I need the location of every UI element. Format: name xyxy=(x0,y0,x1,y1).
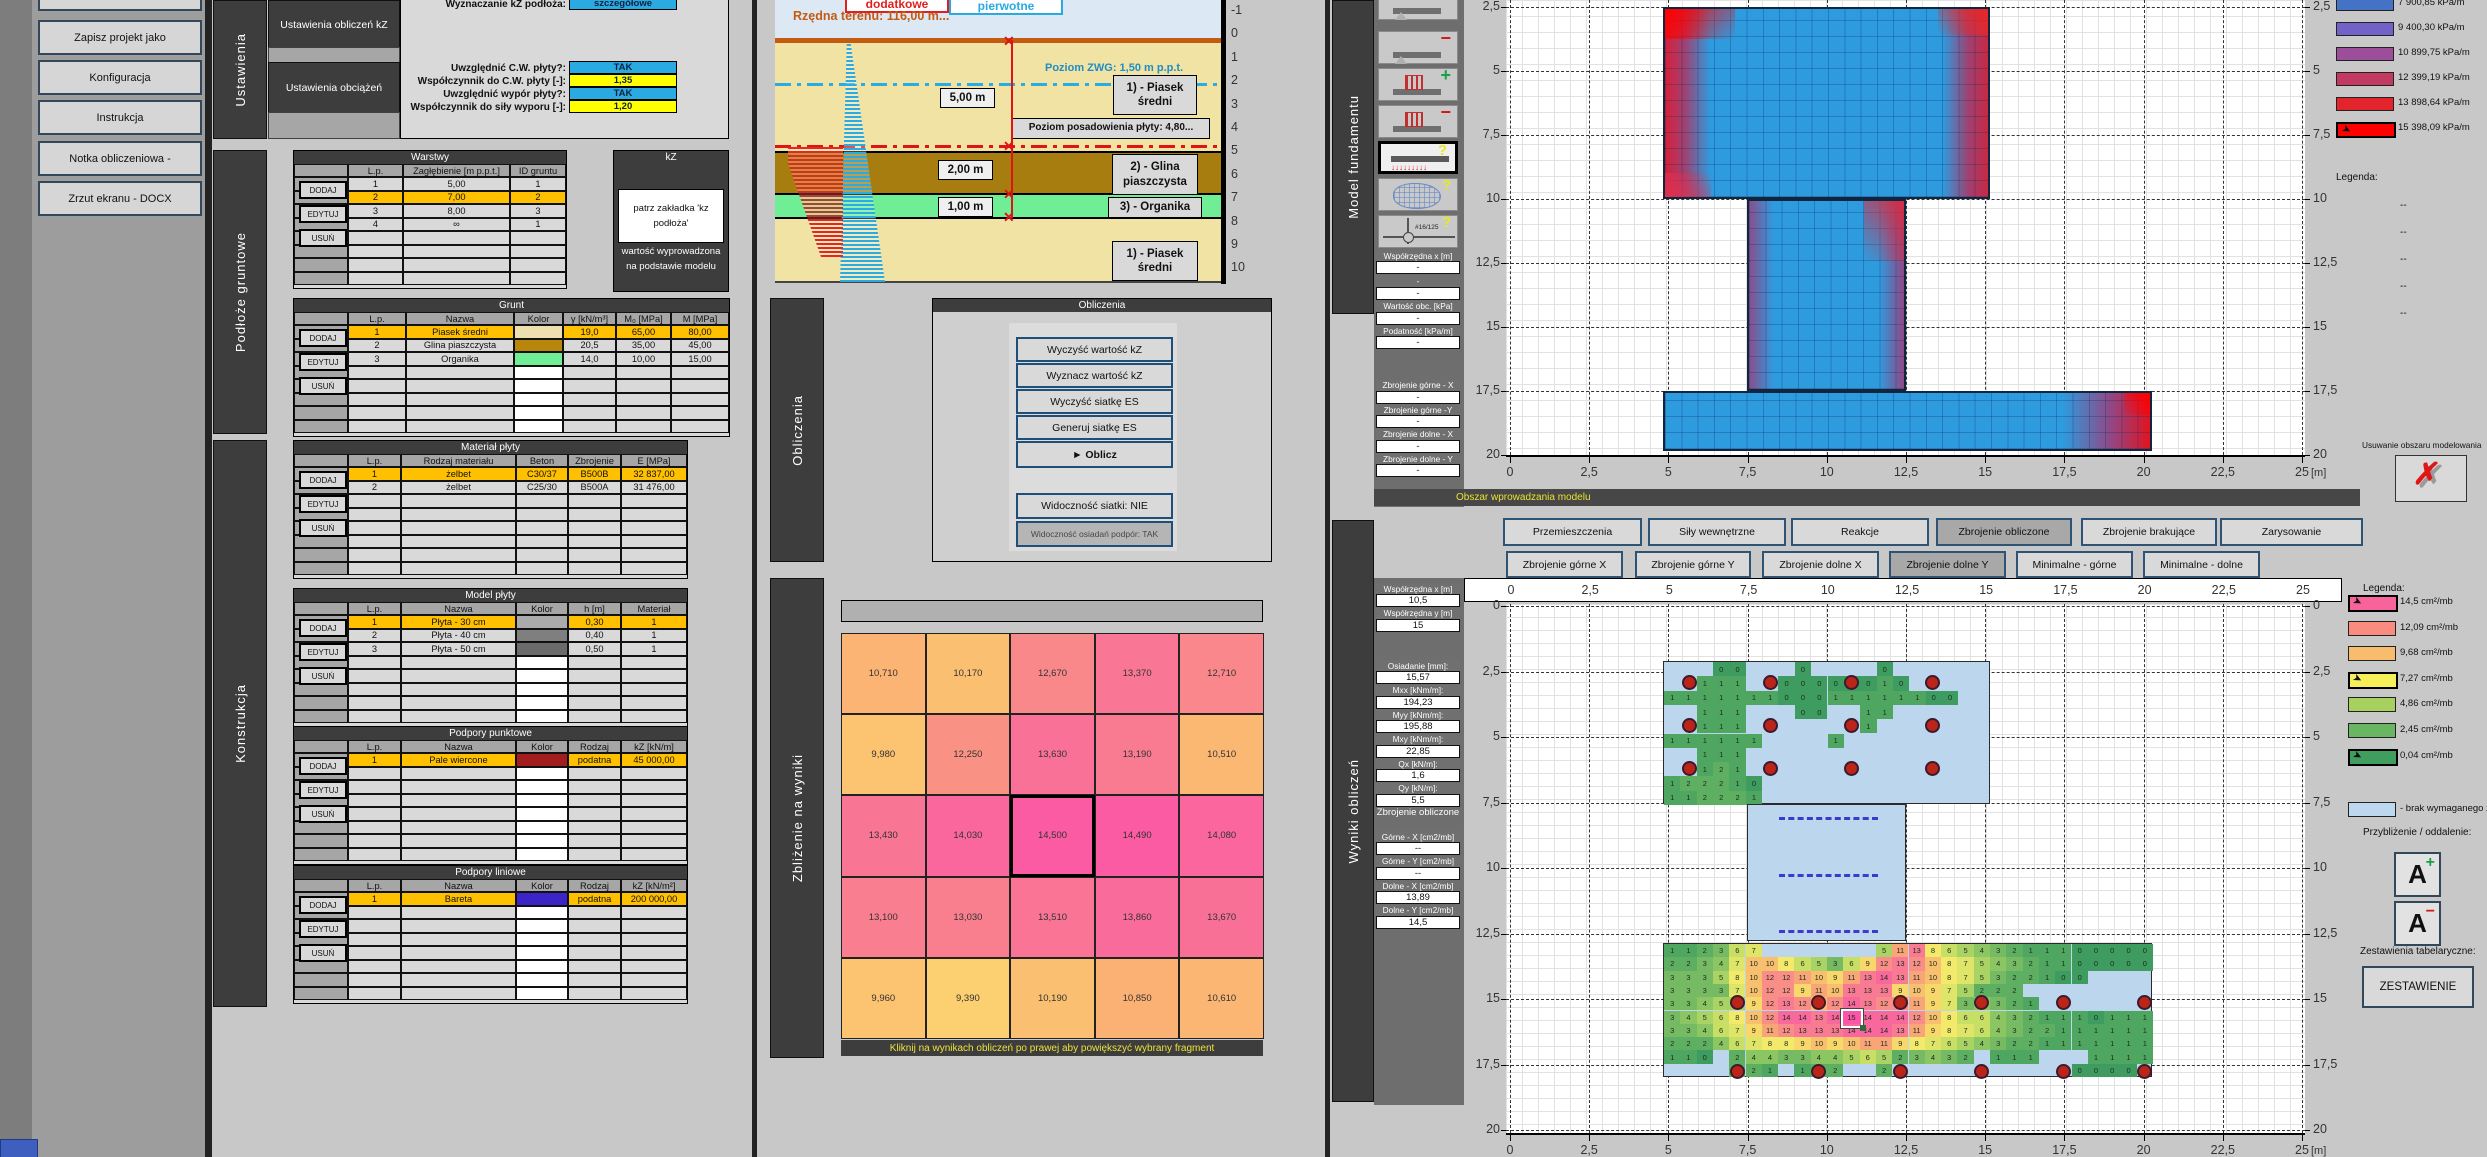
font-zoom-out-button[interactable]: A− xyxy=(2394,901,2441,946)
band-cell: 2 xyxy=(1697,944,1713,957)
strip-field-value[interactable]: 5,5 xyxy=(1376,794,1460,807)
zoom-grid-cell[interactable]: 13,630 xyxy=(1010,714,1095,795)
table-cell xyxy=(516,642,568,656)
result-tab-przemieszczenia[interactable]: Przemieszczenia xyxy=(1503,518,1642,546)
delete-area-button[interactable]: ✗ ✗ xyxy=(2395,455,2467,502)
top-cell: 1 xyxy=(1746,691,1762,705)
result-subtab-zbrojenie-dolne-y[interactable]: Zbrojenie dolne Y xyxy=(1889,551,2006,578)
table-cell xyxy=(621,807,687,821)
table-title-grunt: Grunt xyxy=(294,299,729,312)
strip-field-value[interactable]: -- xyxy=(1376,842,1460,855)
band-cell: 4 xyxy=(1811,1050,1827,1063)
table-cell xyxy=(401,973,516,987)
model-foundation-top-block[interactable] xyxy=(1663,7,1990,199)
model-legend-swatch[interactable] xyxy=(2336,72,2394,86)
calc-note-button[interactable]: Notka obliczeniowa - xyxy=(38,141,202,176)
table-cell xyxy=(401,919,516,933)
table-cell xyxy=(568,696,621,710)
zoom-grid-cell[interactable]: 14,030 xyxy=(926,795,1011,876)
strip-field-value[interactable]: - xyxy=(1376,464,1460,477)
results-top-xtick: 7,5 xyxy=(1729,583,1769,597)
result-tab-reakcje[interactable]: Reakcje xyxy=(1791,518,1929,546)
tick xyxy=(1510,457,1511,463)
table-cell: 0,40 xyxy=(568,629,621,643)
band-cell: 14 xyxy=(1876,971,1892,984)
zoom-grid-cell[interactable]: 10,710 xyxy=(841,633,926,714)
setting-value-input[interactable]: 1,35 xyxy=(569,74,677,87)
band-cell: 0 xyxy=(2072,957,2088,970)
zoom-grid-cell[interactable]: 10,170 xyxy=(926,633,1011,714)
delete-area-label: Usuwanie obszaru modelowania xyxy=(2362,440,2487,450)
table-cell xyxy=(616,420,671,434)
model-legend-swatch[interactable]: ➤ xyxy=(2336,122,2396,138)
hot-corner xyxy=(1864,201,1904,261)
band-cell: 12 xyxy=(1876,957,1892,970)
zoom-grid-cell[interactable]: 13,430 xyxy=(841,795,926,876)
left-gutter xyxy=(0,0,32,1157)
top-cell: 0 xyxy=(1811,691,1827,705)
settings-loads-button[interactable]: Ustawienia obciążeń xyxy=(268,62,400,114)
band-cell: 13 xyxy=(1843,984,1859,997)
table-cell xyxy=(401,946,516,960)
setting-value-dropdown[interactable]: szczegółowe xyxy=(569,0,677,10)
result-tab-siły-wewnętrzne[interactable]: Siły wewnętrzne xyxy=(1648,518,1786,546)
band-cell: 3 xyxy=(1697,971,1713,984)
model-xtick: 22,5 xyxy=(2203,465,2243,479)
zoom-grid-cell[interactable]: 13,370 xyxy=(1095,633,1180,714)
table-cell: podatna xyxy=(568,892,621,906)
strip-field-value[interactable]: 14,5 xyxy=(1376,916,1460,929)
zoom-grid-cell[interactable]: 14,500 xyxy=(1010,795,1095,876)
setting-value-dropdown[interactable]: TAK xyxy=(569,61,677,74)
results-ytick-left: 0 xyxy=(1460,598,1500,612)
table-podpory_punktowe-delete-button[interactable]: USUŃ xyxy=(299,805,347,823)
results-legend-label: 9,68 cm²/mb xyxy=(2400,647,2453,658)
zoom-grid-cell[interactable]: 13,860 xyxy=(1095,877,1180,958)
results-foundation-mid-block[interactable] xyxy=(1747,804,1906,941)
strip-field-value[interactable]: 15 xyxy=(1376,619,1460,632)
load-add-icon[interactable]: + xyxy=(1378,68,1458,101)
result-tab-zbrojenie-brakujące[interactable]: Zbrojenie brakujące xyxy=(2081,518,2217,546)
zoom-grid-cell[interactable]: 13,100 xyxy=(841,877,926,958)
table-warstwy-delete-button[interactable]: USUŃ xyxy=(299,229,347,247)
band-cell: 2 xyxy=(1697,1037,1713,1050)
top-cell: 1 xyxy=(1697,691,1713,705)
tab-obliczenia[interactable]: Obliczenia xyxy=(770,298,824,562)
hot-corner xyxy=(1665,9,1735,39)
top-cell: 0 xyxy=(1828,676,1844,690)
band-cell: 3 xyxy=(1713,984,1729,997)
top-cell: 1 xyxy=(1762,691,1778,705)
band-cell: 2 xyxy=(2006,1037,2022,1050)
strip-field-label: Zbrojenie dolne - X xyxy=(1376,429,1460,440)
line-support xyxy=(1779,930,1878,933)
result-tab-zarysowanie[interactable]: Zarysowanie xyxy=(2220,518,2363,546)
instruction-button[interactable]: Instrukcja xyxy=(38,100,202,135)
band-cell: 6 xyxy=(1729,944,1745,957)
support-settlement-visibility-toggle[interactable]: Widoczność osiadań podpór: TAK xyxy=(1016,521,1173,547)
tick xyxy=(2305,1065,2310,1066)
table-cell: 65,00 xyxy=(616,325,671,339)
model-grid-major-v xyxy=(1510,0,1511,455)
col-header: L.p. xyxy=(348,312,406,325)
action-col xyxy=(294,696,348,710)
calc-button-2[interactable]: Wyczyść siatkę ES xyxy=(1016,389,1173,414)
results-foundation-band-block[interactable]: 1123675111386543211100000223471010865369… xyxy=(1663,943,2152,1077)
table-model_plyty-edit-button[interactable]: EDYTUJ xyxy=(299,643,347,661)
band-cell: 10 xyxy=(1909,984,1925,997)
tab-ustawienia[interactable]: Ustawienia xyxy=(213,0,267,139)
table-podpory_punktowe-add-button[interactable]: DODAJ xyxy=(299,757,347,775)
band-cell: 2 xyxy=(2023,957,2039,970)
results-legend-swatch[interactable]: ➤ xyxy=(2348,672,2398,689)
band-cell: 13 xyxy=(1909,944,1925,957)
table-cell xyxy=(563,420,616,434)
calc-button-1[interactable]: Wyznacz wartość kZ xyxy=(1016,363,1173,388)
strip-field-value[interactable]: 22,85 xyxy=(1376,745,1460,758)
band-cell: 3 xyxy=(1957,997,1973,1010)
strip-field-value[interactable]: - xyxy=(1376,312,1460,325)
line-support xyxy=(1779,874,1878,877)
table-cell xyxy=(516,848,568,862)
results-grid-major-h xyxy=(1506,606,2305,607)
tab-zblizenie-na-wyniki[interactable]: Zbliżenie na wyniki xyxy=(770,578,824,1058)
model-xtick: 5 xyxy=(1648,465,1688,479)
model-legend-swatch[interactable] xyxy=(2336,47,2394,61)
table-cell xyxy=(514,339,563,353)
tick xyxy=(2064,1135,2065,1141)
screenshot-docx-button[interactable]: Zrzut ekranu - DOCX xyxy=(38,181,202,216)
results-legend-swatch[interactable] xyxy=(2348,697,2396,712)
tab-konstrukcja[interactable]: Konstrukcja xyxy=(213,440,267,1007)
table-warstwy-add-button[interactable]: DODAJ xyxy=(299,181,347,199)
zoom-grid-cell[interactable]: 13,030 xyxy=(926,877,1011,958)
tick xyxy=(1827,1135,1828,1141)
pile-support-dot xyxy=(1682,675,1697,690)
rebar-edit-icon[interactable]: #16/125? xyxy=(1378,215,1458,248)
zoom-grid-cell[interactable]: 12,670 xyxy=(1010,633,1095,714)
save-project-as-button[interactable]: Zapisz projekt jako xyxy=(38,20,202,55)
result-subtab-minimalne-górne[interactable]: Minimalne - górne xyxy=(2016,551,2133,578)
zoom-grid-cell[interactable]: 14,080 xyxy=(1179,795,1264,876)
zoom-grid-cell[interactable]: 14,490 xyxy=(1095,795,1180,876)
strip-field-value[interactable]: 15,57 xyxy=(1376,671,1460,684)
table-cell xyxy=(516,629,568,643)
table-grunt-add-button[interactable]: DODAJ xyxy=(299,329,347,347)
band-cell: 10 xyxy=(1811,1037,1827,1050)
band-cell: 2 xyxy=(2023,1037,2039,1050)
band-cell: 5 xyxy=(1974,971,1990,984)
pile-support-dot xyxy=(1730,1064,1745,1079)
table-material-edit-button[interactable]: EDYTUJ xyxy=(299,495,347,513)
table-cell xyxy=(516,933,568,947)
table-cell xyxy=(568,987,621,1001)
top-cell: 1 xyxy=(1729,776,1745,790)
beam-support-add-icon[interactable]: + xyxy=(1378,0,1458,20)
model-ytick-left: 15 xyxy=(1460,319,1500,333)
band-cell: 1 xyxy=(2137,1024,2153,1037)
band-cell: 3 xyxy=(1664,971,1680,984)
model-xtick: 17,5 xyxy=(2044,465,2084,479)
strip-field-value[interactable]: 195,88 xyxy=(1376,720,1460,733)
table-material-add-button[interactable]: DODAJ xyxy=(299,471,347,489)
tab-podloze-gruntowe[interactable]: Podłoże gruntowe xyxy=(213,150,267,434)
zoom-grid-cell[interactable]: 12,250 xyxy=(926,714,1011,795)
zoom-grid-cell[interactable]: 10,510 xyxy=(1179,714,1264,795)
zoom-grid-cell[interactable]: 13,190 xyxy=(1095,714,1180,795)
zoom-grid-cell[interactable]: 9,390 xyxy=(926,958,1011,1039)
zoom-grid-cell[interactable]: 10,190 xyxy=(1010,958,1095,1039)
results-legend-swatch[interactable] xyxy=(2348,723,2396,738)
band-cell: 12 xyxy=(1909,957,1925,970)
band-cell: 10 xyxy=(1746,971,1762,984)
table-podpory_liniowe-add-button[interactable]: DODAJ xyxy=(299,896,347,914)
band-cell: 5 xyxy=(1957,984,1973,997)
calc-button-3[interactable]: Generuj siatkę ES xyxy=(1016,415,1173,440)
strip-field-label: Osiadanie [mm]: xyxy=(1376,660,1460,671)
setting-value-dropdown[interactable]: TAK xyxy=(569,87,677,100)
setting-label: Uwzględnić C.W. płyty?: xyxy=(451,63,566,74)
band-cell: 2 xyxy=(1990,984,2006,997)
table-cell xyxy=(621,933,687,947)
table-cell xyxy=(516,946,568,960)
band-cell: 13 xyxy=(1860,971,1876,984)
table-podpory_liniowe-delete-button[interactable]: USUŃ xyxy=(299,944,347,962)
load-arrows: ↓↓↓↓↓↓↓↓↓ xyxy=(1391,163,1449,171)
tick xyxy=(2305,606,2310,607)
strip-field-value[interactable]: - xyxy=(1376,440,1460,453)
top-cell: 1 xyxy=(1877,705,1893,719)
table-cell: Płyta - 40 cm xyxy=(401,629,516,643)
zoom-grid-cell[interactable]: 13,510 xyxy=(1010,877,1095,958)
soil-axis-tick: -1 xyxy=(1231,3,1242,17)
col-header: γ [kN/m³] xyxy=(563,312,616,325)
results-legend-swatch[interactable]: ➤ xyxy=(2348,595,2398,612)
table-cell xyxy=(406,406,514,420)
band-cell: 5 xyxy=(1713,997,1729,1010)
calc-panel-title: Obliczenia xyxy=(933,299,1271,312)
result-subtab-zbrojenie-górne-x[interactable]: Zbrojenie górne X xyxy=(1506,551,1623,578)
strip-field-value[interactable]: 13,89 xyxy=(1376,891,1460,904)
table-grunt-delete-button[interactable]: USUŃ xyxy=(299,377,347,395)
band-cell: 2 xyxy=(1827,1064,1843,1077)
result-subtab-zbrojenie-dolne-x[interactable]: Zbrojenie dolne X xyxy=(1762,551,1879,578)
results-top-xtick: 15 xyxy=(1966,583,2006,597)
band-cell: 7 xyxy=(1957,1024,1973,1037)
action-col xyxy=(294,562,348,576)
model-legend-swatch[interactable] xyxy=(2336,97,2394,111)
settings-kz-button[interactable]: Ustawienia obliczeń kZ xyxy=(268,0,400,49)
zoom-grid-cell[interactable]: 10,850 xyxy=(1095,958,1180,1039)
table-cell xyxy=(348,834,401,848)
layer3-label-box: 3) - Organika xyxy=(1108,197,1202,218)
table-cell: 2 xyxy=(348,339,406,353)
band-cell: 12 xyxy=(1762,971,1778,984)
band-cell: 3 xyxy=(1794,1050,1810,1063)
tick xyxy=(2305,327,2310,328)
table-title-podpory_liniowe: Podpory liniowe xyxy=(294,866,687,879)
result-subtab-zbrojenie-górne-y[interactable]: Zbrojenie górne Y xyxy=(1635,551,1751,578)
top-cell: 2 xyxy=(1713,791,1729,805)
strip-field-value[interactable]: 194,23 xyxy=(1376,696,1460,709)
strip-field-value[interactable]: 10,5 xyxy=(1376,594,1460,607)
selected-result-cell[interactable] xyxy=(1841,1009,1863,1028)
band-cell: 9 xyxy=(1860,957,1876,970)
model-grid-major-v xyxy=(2223,0,2224,455)
band-cell: 13 xyxy=(1892,957,1908,970)
results-xtick: 0 xyxy=(1490,1143,1530,1157)
table-cell xyxy=(621,848,687,862)
zoom-grid-cell[interactable]: 9,960 xyxy=(841,958,926,1039)
strip-field-value[interactable]: - xyxy=(1376,287,1460,300)
table-podpory_punktowe-edit-button[interactable]: EDYTUJ xyxy=(299,781,347,799)
table-cell xyxy=(516,821,568,835)
layer1-label-box: 1) - Piasek średni xyxy=(1113,75,1197,115)
result-tab-zbrojenie-obliczone[interactable]: Zbrojenie obliczone xyxy=(1936,518,2072,546)
top-cell: 1 xyxy=(1877,691,1893,705)
top-cell: 2 xyxy=(1713,762,1729,776)
setting-value-input[interactable]: 1,20 xyxy=(569,100,677,113)
load-edit-icon[interactable]: ↓↓↓↓↓↓↓↓↓? xyxy=(1378,141,1458,174)
strip-field-label: Dolne - X [cm2/mb] xyxy=(1376,880,1460,891)
pile-support-dot xyxy=(1811,1064,1826,1079)
tab-model-fundamentu[interactable]: Model fundamentu xyxy=(1332,0,1374,314)
calc-button-4[interactable]: ► Oblicz xyxy=(1016,441,1173,468)
table-cell xyxy=(401,794,516,808)
strip-field-value[interactable]: -- xyxy=(1376,867,1460,880)
model-legend-swatch[interactable] xyxy=(2336,0,2394,11)
tick xyxy=(1501,1065,1506,1066)
table-cell xyxy=(568,548,621,562)
band-cell: 7 xyxy=(1941,997,1957,1010)
model-foundation-mid-block[interactable] xyxy=(1747,199,1906,391)
table-cell: Glina piaszczysta xyxy=(406,339,514,353)
load-remove-icon[interactable]: − xyxy=(1378,105,1458,138)
table-material-delete-button[interactable]: USUŃ xyxy=(299,519,347,537)
results-legend-swatch[interactable]: ➤ xyxy=(2348,749,2398,766)
results-legend-swatch[interactable] xyxy=(2348,646,2396,661)
soil-axis-tick: 7 xyxy=(1231,190,1238,204)
model-ytick-left: 7,5 xyxy=(1460,127,1500,141)
band-cell: 4 xyxy=(1762,1050,1778,1063)
table-warstwy-edit-button[interactable]: EDYTUJ xyxy=(299,205,347,223)
table-cell xyxy=(621,960,687,974)
zoom-grid-cell[interactable]: 13,670 xyxy=(1179,877,1264,958)
table-cell xyxy=(516,906,568,920)
top-cell: 1 xyxy=(1713,691,1729,705)
model-xtick: 2,5 xyxy=(1569,465,1609,479)
strip-field-value[interactable]: - xyxy=(1376,391,1460,404)
strip-field-value[interactable]: 1,6 xyxy=(1376,769,1460,782)
setting-label: Wyznaczanie kZ podłoża: xyxy=(446,0,566,10)
font-zoom-in-button[interactable]: A+ xyxy=(2394,852,2441,897)
top-cell: 0 xyxy=(1795,676,1811,690)
hot-corner xyxy=(2124,393,2150,415)
table-cell: 2 xyxy=(348,629,401,643)
band-cell: 7 xyxy=(1746,1037,1762,1050)
tick xyxy=(1501,7,1506,8)
pile-support-dot xyxy=(2137,995,2152,1010)
model-foundation-band-block[interactable] xyxy=(1663,391,2152,451)
table-cell xyxy=(510,258,566,272)
band-cell: 4 xyxy=(1974,944,1990,957)
band-cell: 1 xyxy=(1664,1050,1680,1063)
results-legend-swatch[interactable] xyxy=(2348,621,2396,636)
tick xyxy=(1501,1130,1506,1131)
band-cell: 9 xyxy=(1925,997,1941,1010)
strip-field-value[interactable]: - xyxy=(1376,336,1460,349)
top-cell: 1 xyxy=(1697,676,1713,690)
zestawienie-button[interactable]: ZESTAWIENIE xyxy=(2362,966,2474,1008)
results-foundation-top-block[interactable]: 0000111000000101111111000111111001110011… xyxy=(1663,661,1990,804)
table-cell xyxy=(563,406,616,420)
toolbar-button-partial[interactable] xyxy=(38,0,202,11)
col-header: M₀ [MPa] xyxy=(616,312,671,325)
table-cell xyxy=(616,366,671,380)
top-cell: 1 xyxy=(1713,705,1729,719)
mesh-edit-icon[interactable]: ? xyxy=(1378,178,1458,211)
strip-field-value[interactable]: - xyxy=(1376,415,1460,428)
strip-field-label: Współrzędna x [m] xyxy=(1376,583,1460,594)
table-model_plyty-add-button[interactable]: DODAJ xyxy=(299,619,347,637)
zoom-grid-cell[interactable]: 9,980 xyxy=(841,714,926,795)
pile-support-dot xyxy=(2137,1064,2152,1079)
table-cell xyxy=(516,780,568,794)
band-cell: 12 xyxy=(1876,997,1892,1010)
table-grunt-edit-button[interactable]: EDYTUJ xyxy=(299,353,347,371)
table-cell xyxy=(621,696,687,710)
pile-support-dot xyxy=(1893,995,1908,1010)
mesh-visibility-toggle[interactable]: Widoczność siatki: NIE xyxy=(1016,493,1173,519)
top-cell: 1 xyxy=(1729,748,1745,762)
zoom-grid-cell[interactable]: 10,610 xyxy=(1179,958,1264,1039)
results-top-xtick: 25 xyxy=(2283,583,2323,597)
band-cell: 5 xyxy=(1957,1037,1973,1050)
strip-field-value[interactable]: - xyxy=(1376,261,1460,274)
setting-label: Uwzględnić wypór płyty?: xyxy=(443,89,566,100)
zoom-grid-header xyxy=(841,600,1263,622)
beam-support-remove-icon[interactable]: − xyxy=(1378,31,1458,64)
results-legend-label: 2,45 cm²/mb xyxy=(2400,724,2453,735)
table-podpory_liniowe-edit-button[interactable]: EDYTUJ xyxy=(299,920,347,938)
line-support xyxy=(1779,817,1878,820)
top-cell: 1 xyxy=(1713,676,1729,690)
band-cell: 7 xyxy=(1925,1037,1941,1050)
pile-support-dot xyxy=(1844,761,1859,776)
top-cell: 0 xyxy=(1795,662,1811,676)
calc-button-0[interactable]: Wyczyść wartość kZ xyxy=(1016,337,1173,362)
result-subtab-minimalne-dolne[interactable]: Minimalne - dolne xyxy=(2143,551,2260,578)
band-cell: 12 xyxy=(1762,997,1778,1010)
band-cell: 13 xyxy=(1892,971,1908,984)
zoom-grid-cell[interactable]: 12,710 xyxy=(1179,633,1264,714)
table-cell xyxy=(568,562,621,576)
configuration-button[interactable]: Konfiguracja xyxy=(38,60,202,95)
action-col xyxy=(294,834,348,848)
layer1b-label-box: 1) - Piasek średni xyxy=(1112,241,1198,281)
model-legend-swatch[interactable] xyxy=(2336,22,2394,36)
band-cell: 9 xyxy=(1746,997,1762,1010)
band-cell: 0 xyxy=(2104,1064,2120,1077)
band-cell: 11 xyxy=(1860,1037,1876,1050)
table-model_plyty-delete-button[interactable]: USUŃ xyxy=(299,667,347,685)
tab-wyniki-obliczen[interactable]: Wyniki obliczeń xyxy=(1332,520,1374,1102)
zwg-label: Poziom ZWG: 1,50 m p.p.t. xyxy=(1045,62,1183,74)
results-xtick: 5 xyxy=(1648,1143,1688,1157)
table-cell xyxy=(621,548,687,562)
band-cell: 2 xyxy=(2023,1011,2039,1024)
model-ytick-right: 7,5 xyxy=(2313,127,2330,141)
